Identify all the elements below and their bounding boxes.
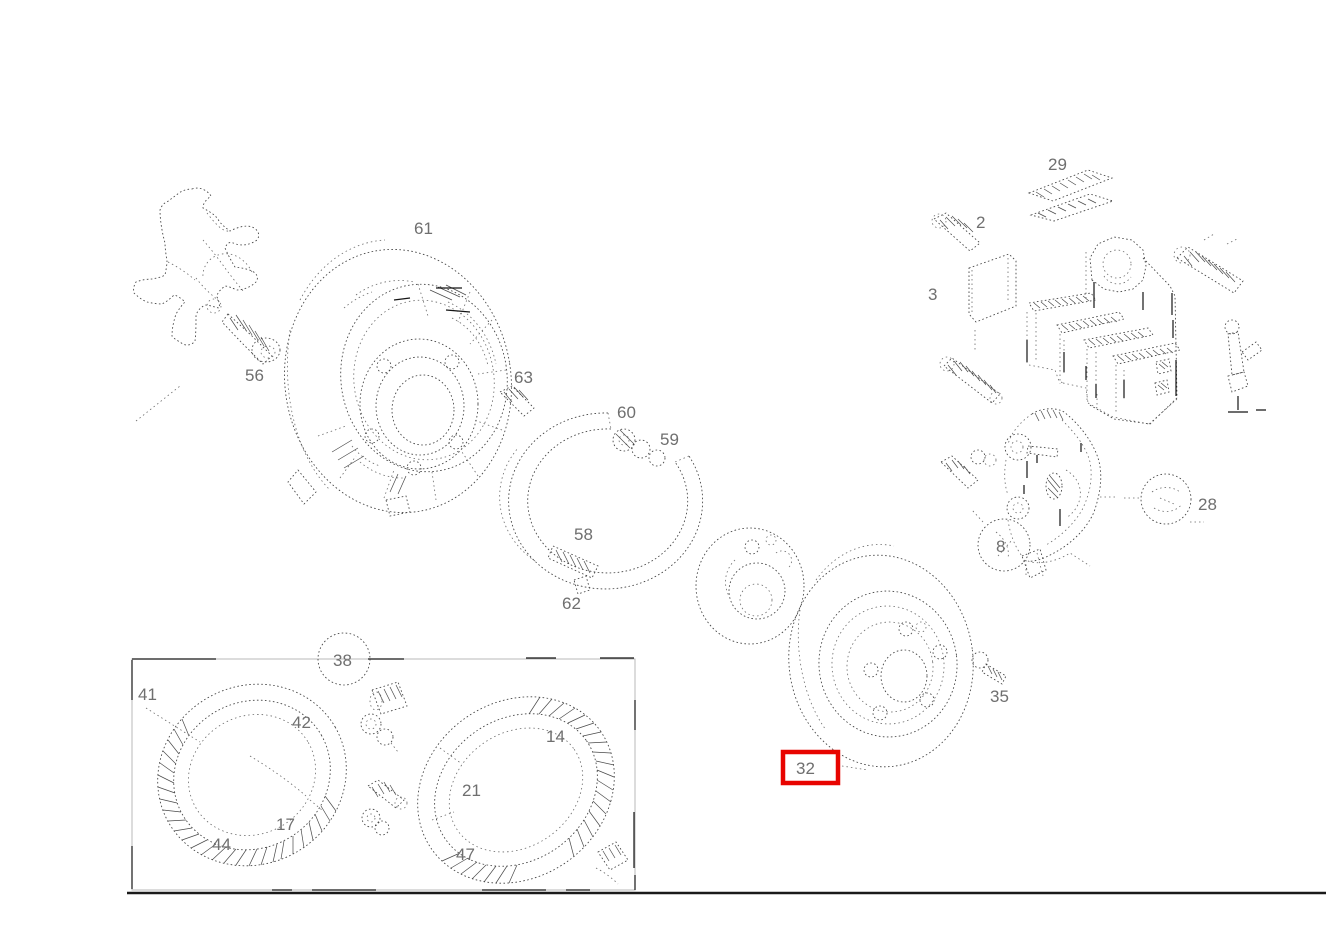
svg-text:44: 44	[212, 835, 231, 854]
svg-text:14: 14	[546, 727, 565, 746]
svg-text:59: 59	[660, 430, 679, 449]
svg-text:58: 58	[574, 525, 593, 544]
svg-text:3: 3	[928, 285, 937, 304]
svg-text:21: 21	[462, 781, 481, 800]
svg-text:8: 8	[996, 537, 1005, 556]
svg-text:61: 61	[414, 219, 433, 238]
svg-text:56: 56	[245, 366, 264, 385]
svg-text:60: 60	[617, 403, 636, 422]
svg-text:63: 63	[514, 368, 533, 387]
svg-text:29: 29	[1048, 155, 1067, 174]
svg-text:41: 41	[138, 685, 157, 704]
svg-text:17: 17	[276, 815, 295, 834]
svg-text:42: 42	[292, 713, 311, 732]
svg-text:35: 35	[990, 687, 1009, 706]
svg-text:28: 28	[1198, 495, 1217, 514]
svg-text:62: 62	[562, 594, 581, 613]
svg-text:38: 38	[333, 651, 352, 670]
svg-text:2: 2	[976, 213, 985, 232]
svg-text:47: 47	[456, 845, 475, 864]
svg-text:32: 32	[796, 759, 815, 778]
